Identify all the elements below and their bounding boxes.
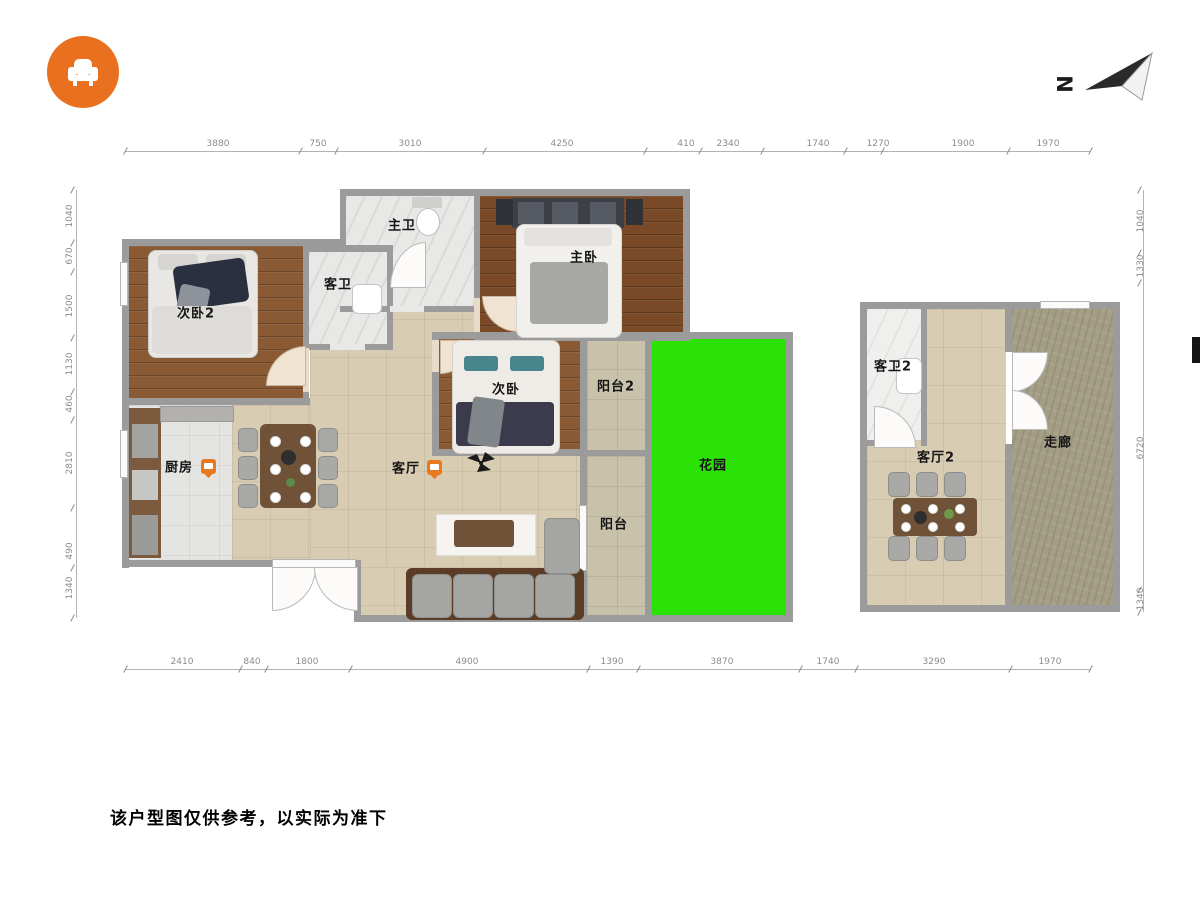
- dim-bottom-5: 3870: [711, 657, 734, 667]
- dim-bottom-6: 1740: [817, 657, 840, 667]
- disclaimer-text: 该户型图仅供参考，以实际为准下: [110, 804, 388, 829]
- table-plant: [286, 478, 295, 487]
- dining-chair: [318, 428, 338, 452]
- sofa-cushion: [535, 574, 575, 618]
- dim-top-2: 3010: [399, 139, 422, 149]
- dining-chair: [238, 484, 258, 508]
- plate: [300, 492, 311, 503]
- sink: [352, 284, 382, 314]
- toilet: [416, 208, 440, 236]
- dining-chair: [238, 428, 258, 452]
- plate: [955, 504, 965, 514]
- plate: [955, 522, 965, 532]
- wardrobe-door: [590, 202, 616, 224]
- wall-segment: [860, 302, 867, 612]
- sofa-logo-icon: [47, 36, 119, 108]
- dim-left-0: 1040: [65, 205, 75, 228]
- pillow: [524, 228, 612, 246]
- dimension-line-top: [125, 151, 1090, 152]
- wall-segment: [1113, 302, 1120, 612]
- plate: [270, 436, 281, 447]
- doorway-gap: [474, 298, 480, 332]
- dimension-line-bottom: [125, 669, 1090, 670]
- kitchen-marker-icon: [201, 459, 216, 474]
- room-label-guest-bath: 客卫: [324, 274, 352, 293]
- coffee-table: [454, 520, 514, 547]
- dim-left-4: 460: [65, 395, 75, 412]
- plate: [270, 492, 281, 503]
- dining-chair: [888, 472, 910, 497]
- nightstand: [496, 199, 513, 225]
- marker-glyph: [430, 464, 439, 470]
- dim-top-9: 1970: [1037, 139, 1060, 149]
- dim-tick: [70, 268, 75, 276]
- nightstand: [626, 199, 643, 225]
- room-label-living: 客厅: [392, 458, 420, 477]
- wall-segment: [683, 189, 690, 341]
- table-centerpiece: [914, 511, 927, 524]
- dim-tick: [70, 186, 75, 194]
- window: [120, 430, 128, 478]
- wall-segment: [645, 615, 793, 622]
- wall-segment: [1005, 302, 1012, 352]
- dim-tick: [1088, 147, 1093, 155]
- room-floor-balcony2: [587, 339, 645, 450]
- dining-chair: [238, 456, 258, 480]
- dim-top-3: 4250: [551, 139, 574, 149]
- living-marker-icon: [427, 460, 442, 475]
- dim-tick: [1088, 665, 1093, 673]
- room-label-corridor: 走廊: [1044, 432, 1072, 451]
- right-edge-mark: [1192, 337, 1200, 363]
- room-label-balcony2: 阳台2: [597, 376, 635, 395]
- dim-bottom-4: 1390: [601, 657, 624, 667]
- dim-bottom-7: 3290: [923, 657, 946, 667]
- wardrobe-door: [518, 202, 544, 224]
- dim-tick: [70, 504, 75, 512]
- entry-door-left: [272, 567, 316, 611]
- kitchen-sink: [132, 470, 158, 500]
- dim-top-5: 2340: [717, 139, 740, 149]
- dim-right-0: 1040: [1136, 210, 1146, 233]
- dim-left-3: 1130: [65, 353, 75, 376]
- armchair-icon: [64, 53, 102, 91]
- table-flower: [944, 509, 954, 519]
- dim-top-0: 3880: [207, 139, 230, 149]
- doorway-gap: [330, 344, 365, 350]
- doorway-gap: [432, 340, 439, 372]
- kitchen-appliance: [132, 515, 158, 555]
- wall-segment: [860, 605, 1120, 612]
- dim-top-1: 750: [309, 139, 326, 149]
- dim-bottom-0: 2410: [171, 657, 194, 667]
- window: [579, 505, 587, 571]
- plate: [300, 464, 311, 475]
- marker-glyph: [204, 463, 213, 469]
- dim-right-2: 6720: [1136, 437, 1146, 460]
- sofa-chaise: [544, 518, 580, 574]
- dining-chair: [888, 536, 910, 561]
- wall-segment: [340, 196, 346, 252]
- dim-left-2: 1500: [65, 295, 75, 318]
- sofa-cushion: [494, 574, 534, 618]
- dim-right-3: 1340: [1136, 588, 1146, 611]
- dim-tick: [70, 239, 75, 247]
- wall-segment: [387, 252, 393, 350]
- plate: [901, 522, 911, 532]
- plate: [901, 504, 911, 514]
- dimension-line-right: [1143, 190, 1144, 612]
- dim-top-6: 1740: [807, 139, 830, 149]
- window: [1040, 301, 1090, 309]
- wall-segment: [786, 332, 793, 622]
- ceiling-fan-icon: [465, 452, 497, 478]
- room-label-guest-bath2: 客卫2: [874, 356, 912, 375]
- kitchen-appliance: [132, 424, 158, 458]
- dim-bottom-1: 840: [243, 657, 260, 667]
- room-label-bedroom3: 次卧: [492, 379, 520, 398]
- wall-segment: [583, 450, 645, 456]
- dim-left-5: 2810: [65, 452, 75, 475]
- dim-left-7: 1340: [65, 577, 75, 600]
- sofa-cushion: [412, 574, 452, 618]
- dim-left-6: 490: [65, 542, 75, 559]
- room-floor-balcony: [587, 456, 645, 615]
- compass-north-label: N: [1052, 75, 1076, 93]
- doorway-gap: [390, 306, 424, 312]
- dim-tick: [70, 614, 75, 622]
- wall-segment: [340, 189, 690, 196]
- dim-tick: [70, 334, 75, 342]
- room-label-master-bedroom: 主卧: [570, 247, 598, 266]
- pillow: [464, 356, 498, 371]
- room-label-bedroom2: 次卧2: [177, 303, 215, 322]
- kitchen-cabinet: [160, 406, 234, 422]
- dim-tick: [70, 564, 75, 572]
- toilet-tank: [412, 197, 442, 208]
- dining-chair: [944, 472, 966, 497]
- room-label-balcony: 阳台: [600, 514, 628, 533]
- room-label-living2: 客厅2: [917, 447, 955, 466]
- blanket: [530, 262, 608, 324]
- wall-segment: [122, 398, 310, 405]
- table-centerpiece: [281, 450, 296, 465]
- dim-top-4: 410: [677, 139, 694, 149]
- dim-bottom-3: 4900: [456, 657, 479, 667]
- dim-tick: [1137, 279, 1142, 287]
- plate: [928, 504, 938, 514]
- dining-chair: [944, 536, 966, 561]
- dining-chair: [916, 472, 938, 497]
- dining-chair: [318, 484, 338, 508]
- dim-top-7: 1270: [867, 139, 890, 149]
- room-floor-garden: [652, 339, 786, 615]
- dim-top-8: 1900: [952, 139, 975, 149]
- plate: [928, 522, 938, 532]
- dim-tick: [70, 416, 75, 424]
- room-label-kitchen: 厨房: [165, 457, 193, 476]
- plate: [270, 464, 281, 475]
- wall-segment: [303, 245, 393, 252]
- dim-tick: [1137, 186, 1142, 194]
- dim-left-1: 670: [65, 247, 75, 264]
- dim-bottom-8: 1970: [1039, 657, 1062, 667]
- room-label-garden: 花园: [699, 455, 727, 474]
- wardrobe-door: [552, 202, 578, 224]
- plate: [300, 436, 311, 447]
- wall-segment: [1005, 444, 1012, 612]
- dimension-line-left: [76, 190, 77, 618]
- window: [120, 262, 128, 306]
- dining-chair: [318, 456, 338, 480]
- pillow: [510, 356, 544, 371]
- towel: [467, 396, 505, 448]
- wall-segment: [645, 332, 652, 622]
- dim-right-1: 1330: [1136, 255, 1146, 278]
- north-compass-icon: [1082, 50, 1157, 109]
- entry-door-right: [314, 567, 358, 611]
- sofa-cushion: [453, 574, 493, 618]
- wall-segment: [122, 560, 274, 567]
- room-label-master-bath: 主卫: [388, 215, 416, 234]
- dining-chair: [916, 536, 938, 561]
- dim-bottom-2: 1800: [296, 657, 319, 667]
